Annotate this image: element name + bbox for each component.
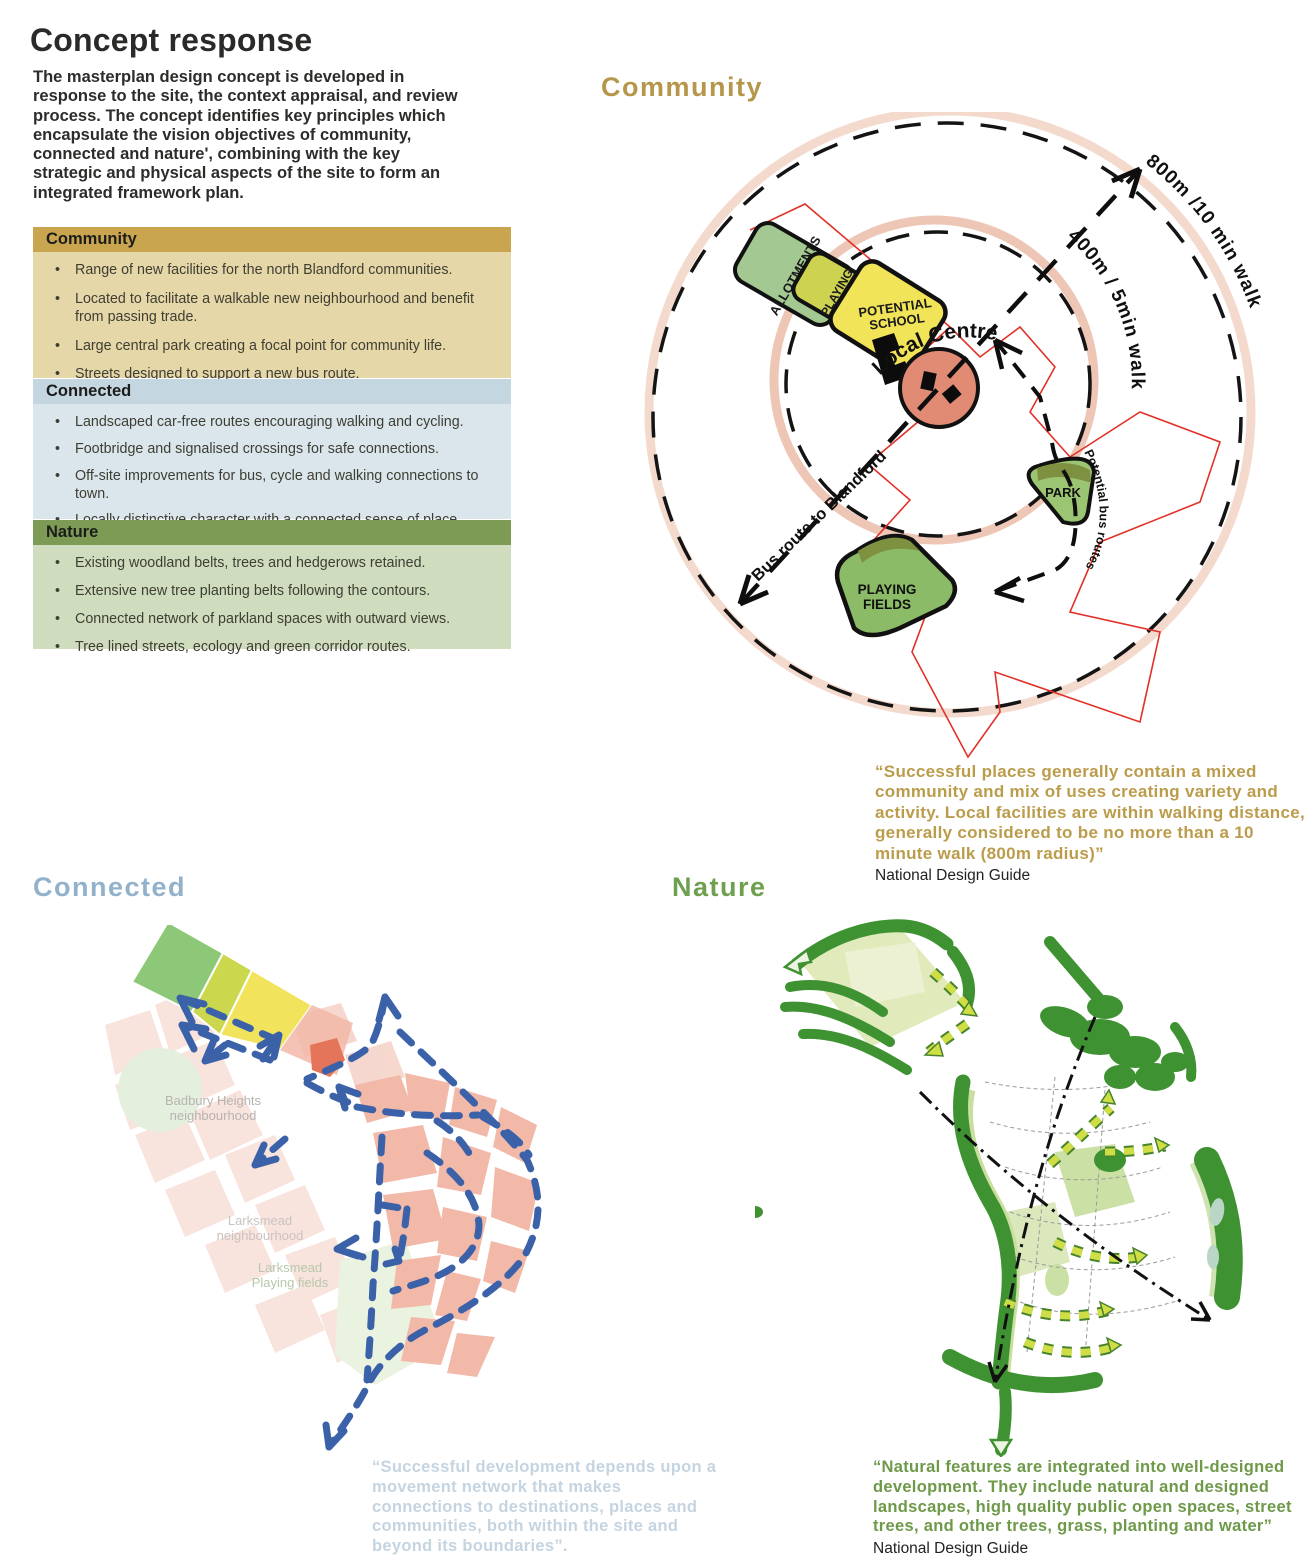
park-label: PARK — [1045, 485, 1081, 500]
panel-nature-header: Nature — [33, 520, 511, 545]
svg-text:Larksmead: Larksmead — [258, 1260, 322, 1275]
panel-connected-title: Connected — [46, 382, 131, 401]
nature-diagram-heading: Nature — [672, 872, 767, 903]
svg-text:FIELDS: FIELDS — [863, 597, 911, 612]
community-diagram-heading: Community — [601, 72, 763, 103]
bullet-item: Existing woodland belts, trees and hedge… — [45, 555, 495, 573]
radius-800m-label: 800m /10 min walk — [1142, 150, 1266, 311]
bullet-item: Connected network of parkland spaces wit… — [45, 611, 495, 629]
panel-community-header: Community — [33, 227, 511, 252]
panel-community-body: Range of new facilities for the north Bl… — [33, 252, 511, 378]
site-parcels — [132, 925, 312, 1050]
svg-text:Larksmead: Larksmead — [228, 1213, 292, 1228]
bullet-item: Landscaped car-free routes encouraging w… — [45, 414, 495, 432]
bullet-item: Extensive new tree planting belts follow… — [45, 583, 495, 601]
panel-nature-body: Existing woodland belts, trees and hedge… — [33, 545, 511, 649]
masterplan-concept-page: Concept response The masterplan design c… — [0, 0, 1315, 1561]
connected-diagram-heading: Connected — [33, 872, 186, 903]
nature-quote: “Natural features are integrated into we… — [873, 1458, 1309, 1537]
tree-planting-belts — [925, 972, 1169, 1352]
connected-quote: “Successful development depends upon a m… — [372, 1458, 720, 1557]
bullet-item: Tree lined streets, ecology and green co… — [45, 639, 495, 657]
nature-quote-source: National Design Guide — [873, 1540, 1309, 1558]
community-quote-source: National Design Guide — [875, 867, 1313, 885]
svg-text:Badbury Heights: Badbury Heights — [165, 1093, 262, 1108]
intro-paragraph: The masterplan design concept is develop… — [33, 68, 473, 203]
connected-quote-block: “Successful development depends upon a m… — [372, 1458, 720, 1561]
svg-text:neighbourhood: neighbourhood — [170, 1108, 257, 1123]
panel-connected-header: Connected — [33, 379, 511, 404]
svg-text:Playing fields: Playing fields — [252, 1275, 329, 1290]
nature-landscape-diagram — [755, 912, 1275, 1457]
bullet-item: Large central park creating a focal poin… — [45, 338, 495, 356]
bullet-item: Located to facilitate a walkable new nei… — [45, 291, 495, 327]
connected-movement-diagram: Badbury Heights neighbourhood Larksmead … — [105, 925, 625, 1537]
playing-fields-label: PLAYING FIELDS — [858, 582, 917, 612]
bullet-item: Footbridge and signalised crossings for … — [45, 441, 495, 459]
panel-nature-title: Nature — [46, 523, 98, 542]
community-quote-block: “Successful places generally contain a m… — [875, 762, 1313, 885]
panel-connected-body: Landscaped car-free routes encouraging w… — [33, 404, 511, 519]
svg-text:PLAYING: PLAYING — [858, 582, 917, 597]
panel-community-title: Community — [46, 230, 137, 249]
page-title: Concept response — [30, 22, 312, 59]
svg-text:neighbourhood: neighbourhood — [217, 1228, 304, 1243]
community-walkability-diagram: ALLOTMENTS PLAYING FIELDS POTENTIAL SCHO… — [600, 112, 1315, 762]
bullet-item: Off-site improvements for bus, cycle and… — [45, 468, 495, 504]
community-quote: “Successful places generally contain a m… — [875, 762, 1313, 864]
bullet-item: Range of new facilities for the north Bl… — [45, 262, 495, 280]
nature-quote-block: “Natural features are integrated into we… — [873, 1458, 1309, 1558]
